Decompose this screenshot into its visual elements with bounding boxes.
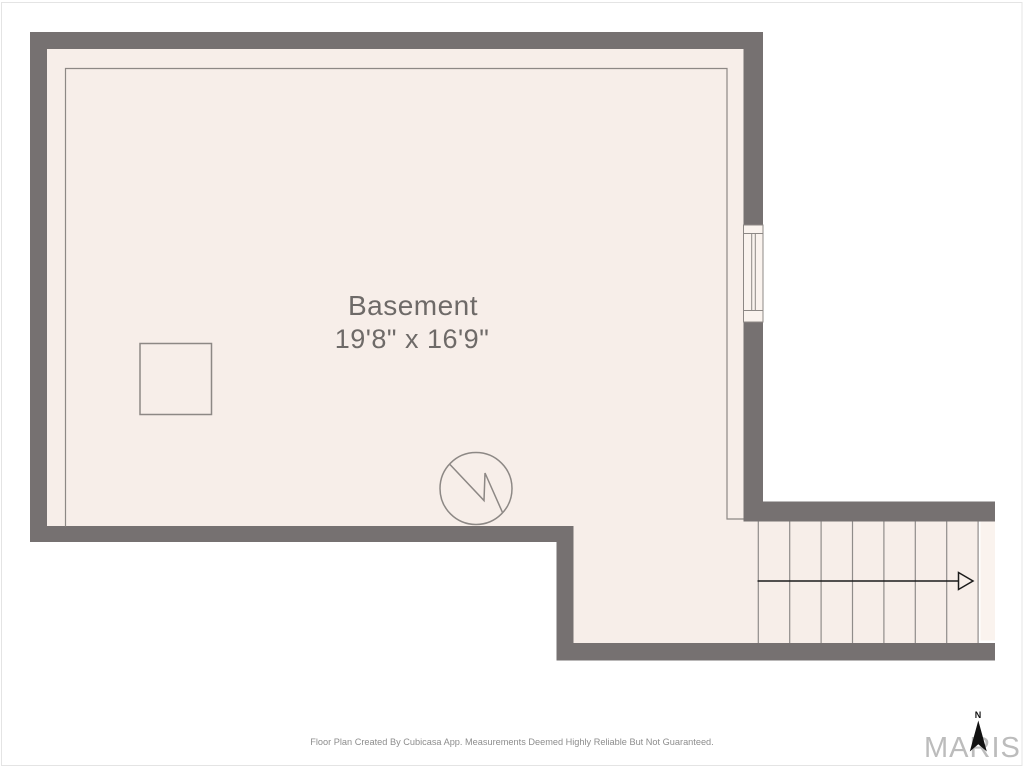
room-name-label: Basement bbox=[348, 290, 478, 321]
wall-top bbox=[30, 32, 763, 49]
wall-bottom bbox=[557, 643, 996, 661]
wall-bottom-left bbox=[30, 526, 574, 542]
floor-plan-page: Basement 19'8" x 16'9" Floor Plan Create… bbox=[0, 0, 1024, 768]
floor-plan-canvas: Basement 19'8" x 16'9" Floor Plan Create… bbox=[0, 0, 1024, 768]
room-dimensions-label: 19'8" x 16'9" bbox=[335, 324, 490, 354]
wall-left bbox=[30, 32, 47, 542]
stair-landing-strip bbox=[981, 522, 996, 641]
floor-area bbox=[47, 49, 978, 643]
window-symbol bbox=[744, 225, 764, 322]
water-heater-icon bbox=[440, 453, 512, 525]
footer-disclaimer: Floor Plan Created By Cubicasa App. Meas… bbox=[310, 737, 713, 747]
compass-north-label: N bbox=[975, 710, 982, 720]
wall-step-down bbox=[557, 526, 574, 661]
wall-stair-top bbox=[744, 502, 996, 522]
